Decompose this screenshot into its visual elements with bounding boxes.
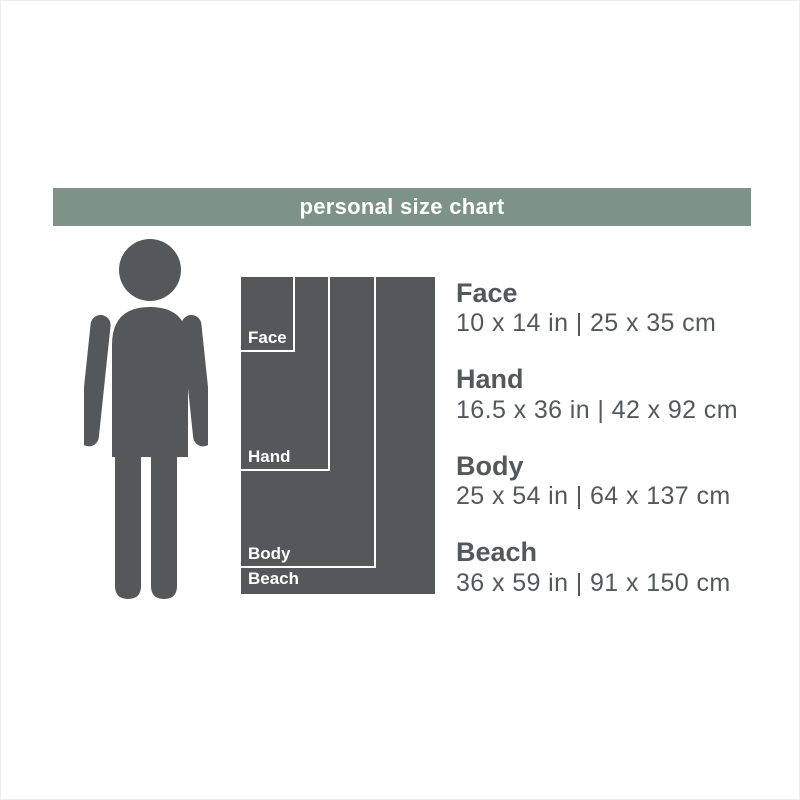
person-left-arm xyxy=(84,314,112,447)
size-entry-face: Face 10 x 14 in | 25 x 35 cm xyxy=(456,278,756,339)
person-silhouette-icon xyxy=(84,239,208,599)
size-entry-beach: Beach 36 x 59 in | 91 x 150 cm xyxy=(456,537,756,598)
size-chart-page: personal size chart Face Hand Body Beach… xyxy=(0,0,800,800)
size-name: Body xyxy=(456,451,756,481)
body-rect-label: Body xyxy=(248,545,291,562)
size-dimensions: 36 x 59 in | 91 x 150 cm xyxy=(456,568,756,599)
size-entry-body: Body 25 x 54 in | 64 x 137 cm xyxy=(456,451,756,512)
person-left-leg xyxy=(115,439,141,599)
person-right-leg xyxy=(151,439,177,599)
beach-rect-label: Beach xyxy=(248,570,299,587)
page-title: personal size chart xyxy=(300,194,505,220)
size-name: Hand xyxy=(456,364,756,394)
body-towel-outline: Body xyxy=(241,277,376,568)
person-torso xyxy=(112,307,188,457)
person-head xyxy=(119,239,181,301)
size-dimensions: 16.5 x 36 in | 42 x 92 cm xyxy=(456,395,756,426)
size-legend: Face 10 x 14 in | 25 x 35 cm Hand 16.5 x… xyxy=(456,278,756,624)
header-bar: personal size chart xyxy=(53,188,751,226)
size-dimensions: 25 x 54 in | 64 x 137 cm xyxy=(456,481,756,512)
size-dimensions: 10 x 14 in | 25 x 35 cm xyxy=(456,308,756,339)
size-name: Beach xyxy=(456,537,756,567)
towel-size-diagram: Face Hand Body Beach xyxy=(241,277,435,594)
size-entry-hand: Hand 16.5 x 36 in | 42 x 92 cm xyxy=(456,364,756,425)
size-name: Face xyxy=(456,278,756,308)
